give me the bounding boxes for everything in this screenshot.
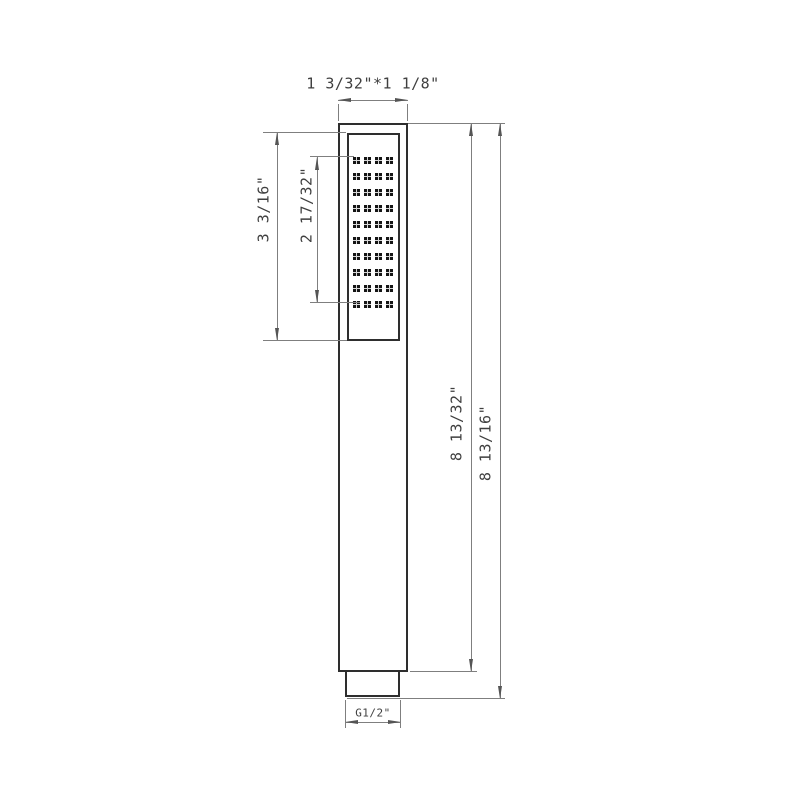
dim-line-overall-length [500,123,501,699]
nozzle-hole [386,173,393,180]
arrowhead-right-icon [388,720,401,724]
nozzle-hole [353,205,360,212]
nozzle-hole [364,189,371,196]
extension-line [310,302,360,303]
nozzle-grid [353,157,393,308]
nozzle-hole [353,285,360,292]
nozzle-hole [364,269,371,276]
dim-label-inlet-thread: G1/2" [355,708,391,719]
nozzle-hole [375,253,382,260]
arrowhead-left-icon [338,98,351,102]
extension-line [347,698,505,699]
nozzle-hole [364,221,371,228]
arrowhead-up-icon [498,123,502,136]
nozzle-hole [375,189,382,196]
arrowhead-left-icon [345,720,358,724]
nozzle-hole [386,205,393,212]
extension-line [407,104,408,121]
dim-line-body-length [471,123,472,672]
nozzle-hole [386,237,393,244]
dim-label-head-face-size: 1 3/32"*1 1/8" [306,77,439,92]
nozzle-hole [386,189,393,196]
nozzle-hole [353,237,360,244]
dim-label-faceplate-height: 3 3/16" [257,176,272,243]
arrowhead-up-icon [275,132,279,145]
inlet-connector-outline [345,672,400,697]
nozzle-hole [375,237,382,244]
nozzle-hole [375,269,382,276]
extension-line [263,132,346,133]
extension-line [263,340,347,341]
nozzle-hole [353,189,360,196]
nozzle-hole [353,221,360,228]
dim-label-nozzle-field-height: 2 17/32" [300,167,315,243]
dimension-drawing-canvas: 1 3/32"*1 1/8" 3 3/16" 2 17/32" 8 13/32"… [0,0,800,800]
nozzle-hole [353,253,360,260]
nozzle-hole [386,301,393,308]
nozzle-hole [386,285,393,292]
arrowhead-right-icon [395,98,408,102]
dim-label-overall-length: 8 13/16" [479,405,494,481]
nozzle-hole [386,269,393,276]
nozzle-hole [364,157,371,164]
dim-line-faceplate-height [277,132,278,341]
nozzle-hole [353,173,360,180]
nozzle-hole [364,285,371,292]
nozzle-hole [375,301,382,308]
nozzle-hole [353,157,360,164]
arrowhead-up-icon [469,123,473,136]
dim-label-body-length: 8 13/32" [450,385,465,461]
extension-line [408,123,505,124]
nozzle-hole [364,253,371,260]
nozzle-hole [386,253,393,260]
nozzle-hole [375,157,382,164]
nozzle-hole [375,205,382,212]
extension-line [338,104,339,121]
nozzle-hole [375,173,382,180]
nozzle-hole [364,237,371,244]
nozzle-hole [375,221,382,228]
nozzle-hole [353,269,360,276]
dim-line-nozzle-field-height [317,157,318,303]
arrowhead-up-icon [315,157,319,170]
extension-line [310,156,354,157]
nozzle-hole [364,173,371,180]
nozzle-hole [364,205,371,212]
nozzle-hole [364,301,371,308]
nozzle-hole [386,157,393,164]
nozzle-hole [386,221,393,228]
extension-line [410,671,477,672]
nozzle-hole [375,285,382,292]
